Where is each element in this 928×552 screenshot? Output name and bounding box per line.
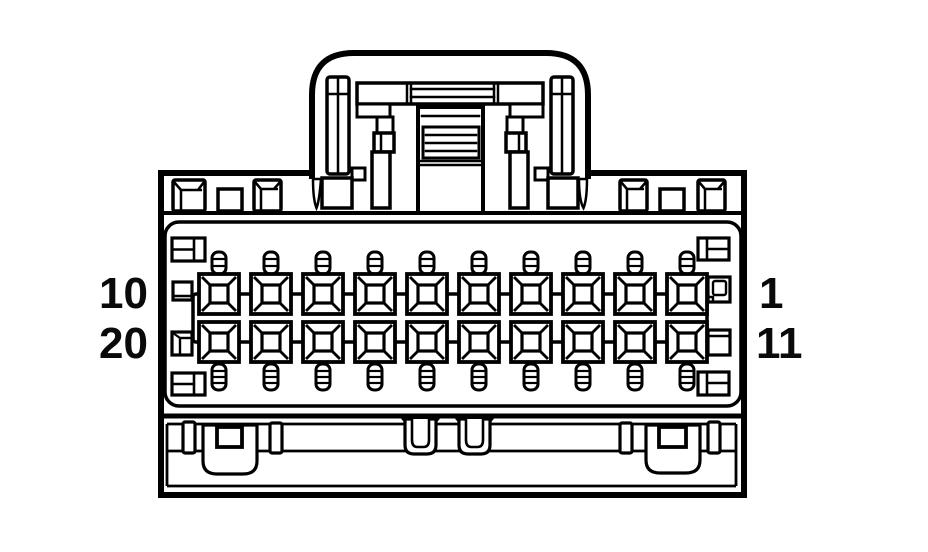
pin-cavity-r1-c10	[667, 274, 707, 314]
vent-top-col7	[524, 252, 538, 274]
vent-bottom-col2	[264, 364, 278, 390]
pin-cavity-r1-c7	[511, 274, 551, 314]
vent-bottom-col9	[628, 364, 642, 390]
pin-label-row1-left: 10	[99, 269, 148, 318]
connector-drawing: 10 20 1 11	[0, 0, 928, 552]
pin-cavity-r2-c4	[355, 322, 395, 362]
pin-cavity-r2-c6	[459, 322, 499, 362]
vent-bottom-col1	[212, 364, 226, 390]
vent-bottom-col3	[316, 364, 330, 390]
pin-cavity-r1-c4	[355, 274, 395, 314]
pin-cavity-r1-c9	[615, 274, 655, 314]
pin-cavity-r1-c1	[199, 274, 239, 314]
pin-cavity-r2-c3	[303, 322, 343, 362]
pin-cavity-r2-c10	[667, 322, 707, 362]
pin-label-row2-right: 11	[756, 319, 803, 368]
vent-top-col2	[264, 252, 278, 274]
pin-cavity-r2-c1	[199, 322, 239, 362]
pin-cavity-r2-c2	[251, 322, 291, 362]
pin-cavity-r1-c5	[407, 274, 447, 314]
pin-cavity-r1-c2	[251, 274, 291, 314]
pin-cavity-r2-c5	[407, 322, 447, 362]
vent-top-col9	[628, 252, 642, 274]
pin-cavity-r1-c3	[303, 274, 343, 314]
vent-top-col5	[420, 252, 434, 274]
vent-top-col1	[212, 252, 226, 274]
vent-bottom-col4	[368, 364, 382, 390]
latch-button	[418, 107, 483, 213]
vent-top-col6	[472, 252, 486, 274]
pin-cavity-r1-c8	[563, 274, 603, 314]
connector-pinout-diagram: 10 20 1 11	[0, 0, 928, 552]
vent-bottom-col7	[524, 364, 538, 390]
vent-bottom-col5	[420, 364, 434, 390]
pin-label-row2-left: 20	[99, 319, 148, 368]
vent-bottom-col6	[472, 364, 486, 390]
vent-top-col10	[680, 252, 694, 274]
pin-cavity-r1-c6	[459, 274, 499, 314]
pin-cavity-r2-c9	[615, 322, 655, 362]
guide-notch-right	[456, 418, 493, 454]
pin-label-row1-right: 1	[759, 269, 783, 318]
vent-top-col4	[368, 252, 382, 274]
guide-notch-left	[402, 418, 439, 454]
vent-top-col3	[316, 252, 330, 274]
pin-cavity-r2-c7	[511, 322, 551, 362]
vent-bottom-col8	[576, 364, 590, 390]
vent-top-col8	[576, 252, 590, 274]
pin-cavity-r2-c8	[563, 322, 603, 362]
vent-bottom-col10	[680, 364, 694, 390]
